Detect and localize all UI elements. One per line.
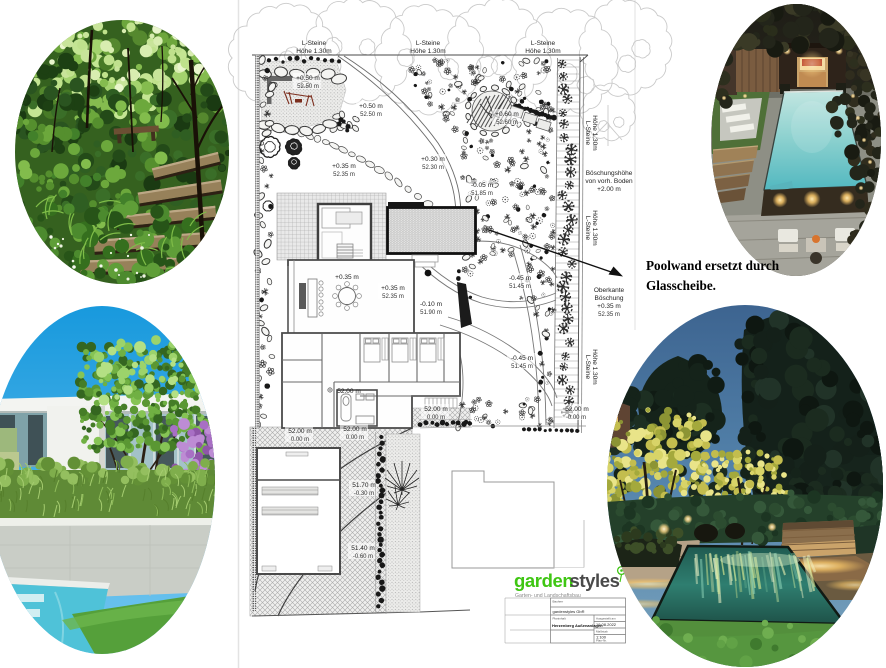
svg-text:-0.30 m: -0.30 m xyxy=(354,491,374,497)
svg-text:L-Steine: L-Steine xyxy=(584,121,591,146)
svg-text:52.50 m: 52.50 m xyxy=(297,84,319,90)
svg-text:Höhe 1.30m: Höhe 1.30m xyxy=(591,115,598,150)
svg-text:Oberkante: Oberkante xyxy=(594,287,625,294)
svg-text:+0.30 m: +0.30 m xyxy=(421,156,445,163)
svg-text:52.30 m: 52.30 m xyxy=(422,165,444,171)
svg-text:52.00 m: 52.00 m xyxy=(343,426,367,433)
svg-text:0.00 m: 0.00 m xyxy=(346,435,364,441)
svg-text:0.00 m: 0.00 m xyxy=(291,437,309,443)
svg-text:52.00 m: 52.00 m xyxy=(424,406,448,413)
svg-text:51.40 m: 51.40 m xyxy=(351,545,375,552)
svg-text:+0.35 m: +0.35 m xyxy=(597,303,621,310)
svg-text:Höhe 1.30m: Höhe 1.30m xyxy=(296,48,331,55)
svg-text:52.35 m: 52.35 m xyxy=(598,312,620,318)
svg-text:52.00 m: 52.00 m xyxy=(337,388,361,395)
svg-text:Ausgestellt am: Ausgestellt am xyxy=(596,617,616,621)
svg-text:L-Steine: L-Steine xyxy=(531,40,556,47)
svg-text:-0.05 m: -0.05 m xyxy=(471,182,493,189)
svg-text:von vorh. Boden: von vorh. Boden xyxy=(585,178,633,185)
svg-text:52.60 m: 52.60 m xyxy=(496,120,518,126)
svg-text:Böschungshöhe: Böschungshöhe xyxy=(586,170,633,177)
svg-text:Plan-Nr.: Plan-Nr. xyxy=(596,639,607,643)
svg-text:Höhe 1.30m: Höhe 1.30m xyxy=(410,48,445,55)
svg-text:Planinhalt: Planinhalt xyxy=(553,617,566,621)
svg-text:51.45 m: 51.45 m xyxy=(511,364,533,370)
svg-text:+0.35 m: +0.35 m xyxy=(332,163,356,170)
svg-text:Höhe 1.30m: Höhe 1.30m xyxy=(525,48,560,55)
svg-text:19.08.2022: 19.08.2022 xyxy=(596,622,617,627)
svg-text:gardenstyles GbR: gardenstyles GbR xyxy=(553,609,585,614)
svg-text:+0.35 m: +0.35 m xyxy=(335,274,359,281)
svg-text:+0.60 m: +0.60 m xyxy=(495,111,519,118)
svg-text:styles: styles xyxy=(570,570,620,591)
svg-text:Maßstab: Maßstab xyxy=(596,630,608,634)
svg-text:51.45 m: 51.45 m xyxy=(509,284,531,290)
svg-text:Bauherr: Bauherr xyxy=(553,600,564,604)
svg-text:51.70 m: 51.70 m xyxy=(352,482,376,489)
svg-text:L-Steine: L-Steine xyxy=(302,40,327,47)
svg-text:+2.00 m: +2.00 m xyxy=(597,186,621,193)
svg-text:-0.45 m: -0.45 m xyxy=(511,355,533,362)
svg-text:garden: garden xyxy=(514,570,573,591)
svg-text:+0.50 m: +0.50 m xyxy=(296,75,320,82)
svg-text:Höhe 1.30m: Höhe 1.30m xyxy=(591,349,598,384)
svg-text:52.35 m: 52.35 m xyxy=(333,172,355,178)
svg-text:-0.10 m: -0.10 m xyxy=(420,301,442,308)
svg-text:+0.50 m: +0.50 m xyxy=(359,103,383,110)
svg-text:0.00 m: 0.00 m xyxy=(568,415,586,421)
svg-text:51.85 m: 51.85 m xyxy=(471,191,493,197)
svg-text:L-Steine: L-Steine xyxy=(416,40,441,47)
svg-text:52.00 m: 52.00 m xyxy=(565,406,589,413)
svg-text:Höhe 1.30m: Höhe 1.30m xyxy=(591,210,598,245)
svg-text:Böschung: Böschung xyxy=(595,295,624,302)
svg-text:L-Steine: L-Steine xyxy=(584,216,591,241)
svg-text:52.50 m: 52.50 m xyxy=(360,112,382,118)
svg-text:-0.45 m: -0.45 m xyxy=(509,275,531,282)
svg-text:Glasscheibe.: Glasscheibe. xyxy=(646,278,716,293)
svg-text:L-Steine: L-Steine xyxy=(584,355,591,380)
svg-text:52.00 m: 52.00 m xyxy=(288,428,312,435)
svg-text:+0.35 m: +0.35 m xyxy=(381,285,405,292)
svg-text:51.90 m: 51.90 m xyxy=(420,310,442,316)
svg-text:-0.60 m: -0.60 m xyxy=(353,554,373,560)
svg-text:Poolwand ersetzt durch: Poolwand ersetzt durch xyxy=(646,258,780,273)
svg-text:52.35 m: 52.35 m xyxy=(382,294,404,300)
